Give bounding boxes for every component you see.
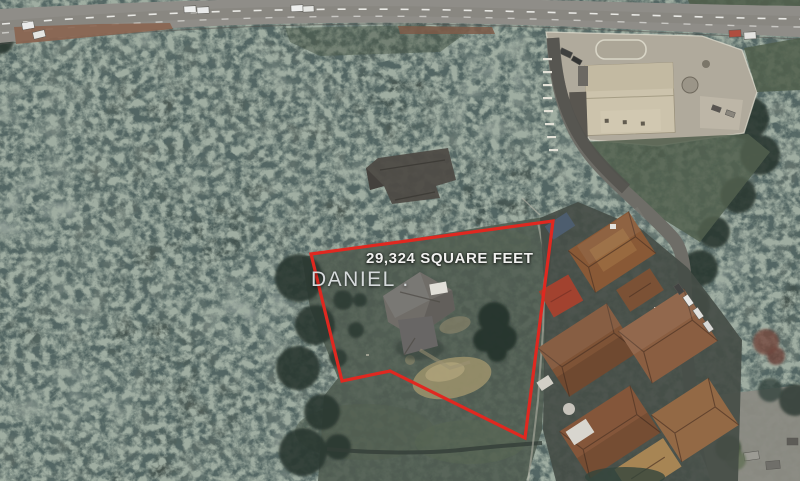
satellite-map-view[interactable]: 29,324 SQUARE FEET DANIEL . <box>0 0 800 481</box>
satellite-scene <box>0 0 800 481</box>
